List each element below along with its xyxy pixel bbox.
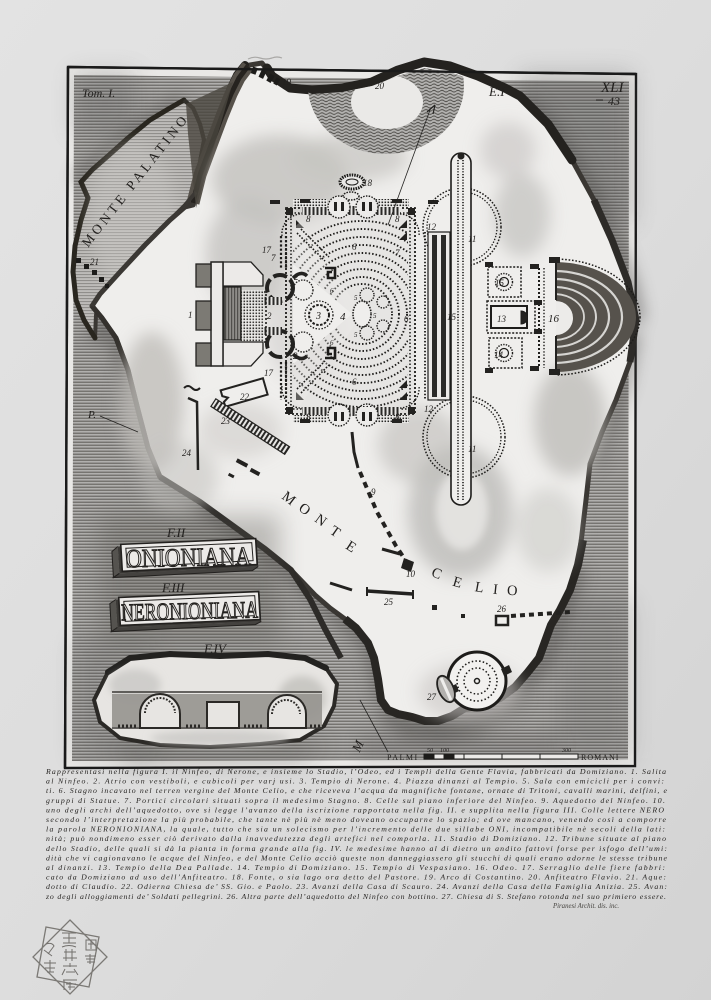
svg-text:secondo l’interpretazione la p: secondo l’interpretazione la più probabi… xyxy=(46,815,667,824)
svg-text:24: 24 xyxy=(182,448,192,458)
svg-text:100: 100 xyxy=(440,748,449,754)
svg-text:22: 22 xyxy=(240,392,250,402)
svg-text:dello Stadio, delle quali si d: dello Stadio, delle quali si dà la piant… xyxy=(46,844,667,853)
svg-text:dotto di Claudio. 22. Odierna: dotto di Claudio. 22. Odierna Chiesa de’… xyxy=(46,882,667,891)
svg-text:gruppi di Statue. 7. Portici c: gruppi di Statue. 7. Portici circolari s… xyxy=(46,796,665,805)
svg-text:F.III: F.III xyxy=(161,580,185,595)
svg-text:5: 5 xyxy=(373,312,377,320)
svg-text:23: 23 xyxy=(221,416,231,426)
svg-text:Tom. I.: Tom. I. xyxy=(82,86,115,100)
svg-text:al Ninfeo. 2. Atrio con vestib: al Ninfeo. 2. Atrio con vestiboli, e cub… xyxy=(46,777,664,786)
svg-text:2: 2 xyxy=(293,351,298,361)
svg-text:9: 9 xyxy=(371,487,376,497)
svg-text:11: 11 xyxy=(468,444,476,454)
svg-text:O: O xyxy=(507,583,518,599)
svg-text:uno degli archi dell’aquedotto: uno degli archi dell’aquedotto, ove si l… xyxy=(46,805,664,814)
svg-text:dità che vi cagionavano le acq: dità che vi cagionavano le acque del Nin… xyxy=(46,853,668,862)
svg-text:5: 5 xyxy=(354,294,358,302)
svg-text:Rappresentasi nella figura I.: Rappresentasi nella figura I. il Ninfeo,… xyxy=(45,767,666,776)
svg-text:13: 13 xyxy=(497,314,507,324)
svg-text:6: 6 xyxy=(330,339,334,347)
svg-text:300: 300 xyxy=(561,748,571,754)
svg-text:6: 6 xyxy=(352,377,357,387)
svg-text:12: 12 xyxy=(427,222,437,232)
svg-text:21: 21 xyxy=(90,257,99,267)
svg-text:8: 8 xyxy=(395,214,400,224)
svg-text:E.I: E.I xyxy=(488,84,505,99)
svg-text:25: 25 xyxy=(384,597,394,607)
svg-text:15: 15 xyxy=(447,312,457,322)
svg-text:8: 8 xyxy=(306,214,311,224)
svg-text:17: 17 xyxy=(264,368,274,378)
svg-text:12: 12 xyxy=(424,404,434,414)
svg-text:1: 1 xyxy=(188,310,193,320)
svg-text:F.II: F.II xyxy=(166,525,186,540)
svg-text:6: 6 xyxy=(330,287,334,295)
svg-text:18: 18 xyxy=(363,178,373,188)
svg-text:6: 6 xyxy=(404,314,409,324)
svg-text:PALMI: PALMI xyxy=(387,753,419,762)
svg-text:4: 4 xyxy=(340,311,346,323)
svg-text:20: 20 xyxy=(375,81,385,91)
svg-text:27: 27 xyxy=(427,692,437,702)
svg-text:NERONIONIANA: NERONIONIANA xyxy=(121,598,259,627)
svg-text:11: 11 xyxy=(468,234,476,244)
svg-text:7: 7 xyxy=(395,248,400,258)
svg-text:zo degli alloggiamenti de’ Sol: zo degli alloggiamenti de’ Soldati pelle… xyxy=(45,892,666,901)
svg-text:5: 5 xyxy=(354,331,358,339)
svg-text:8: 8 xyxy=(395,412,400,422)
svg-text:6: 6 xyxy=(352,242,357,252)
svg-text:10: 10 xyxy=(406,569,416,579)
svg-text:la parola NERONIONIANA, la qua: la parola NERONIONIANA, la quale, tutto … xyxy=(46,825,665,834)
svg-text:17: 17 xyxy=(262,245,272,255)
svg-text:2: 2 xyxy=(294,272,299,282)
svg-text:2: 2 xyxy=(267,311,272,321)
svg-text:8: 8 xyxy=(306,412,311,422)
svg-text:43: 43 xyxy=(608,94,620,108)
svg-text:26: 26 xyxy=(497,604,507,614)
svg-text:16: 16 xyxy=(548,313,560,325)
svg-text:P.: P. xyxy=(87,409,96,421)
svg-text:14: 14 xyxy=(494,350,504,360)
svg-text:50: 50 xyxy=(427,748,433,754)
svg-text:15: 15 xyxy=(495,278,505,288)
svg-text:ti. 6. Stagno incavato nel ter: ti. 6. Stagno incavato nel terren vergin… xyxy=(46,786,668,795)
svg-text:19: 19 xyxy=(282,77,292,87)
svg-text:nità; può nondimeno esser ciò: nità; può nondimeno esser ciò derivato d… xyxy=(46,834,666,843)
svg-text:ROMANI: ROMANI xyxy=(581,753,619,762)
svg-text:7: 7 xyxy=(271,253,276,263)
svg-text:ONIONIANA: ONIONIANA xyxy=(126,542,252,574)
svg-text:Piranesi Archit. dis. inc.: Piranesi Archit. dis. inc. xyxy=(552,903,619,910)
svg-text:al dinanzi. 13. Tempio della D: al dinanzi. 13. Tempio della Dea Pallade… xyxy=(46,863,665,872)
svg-text:3: 3 xyxy=(315,311,321,322)
